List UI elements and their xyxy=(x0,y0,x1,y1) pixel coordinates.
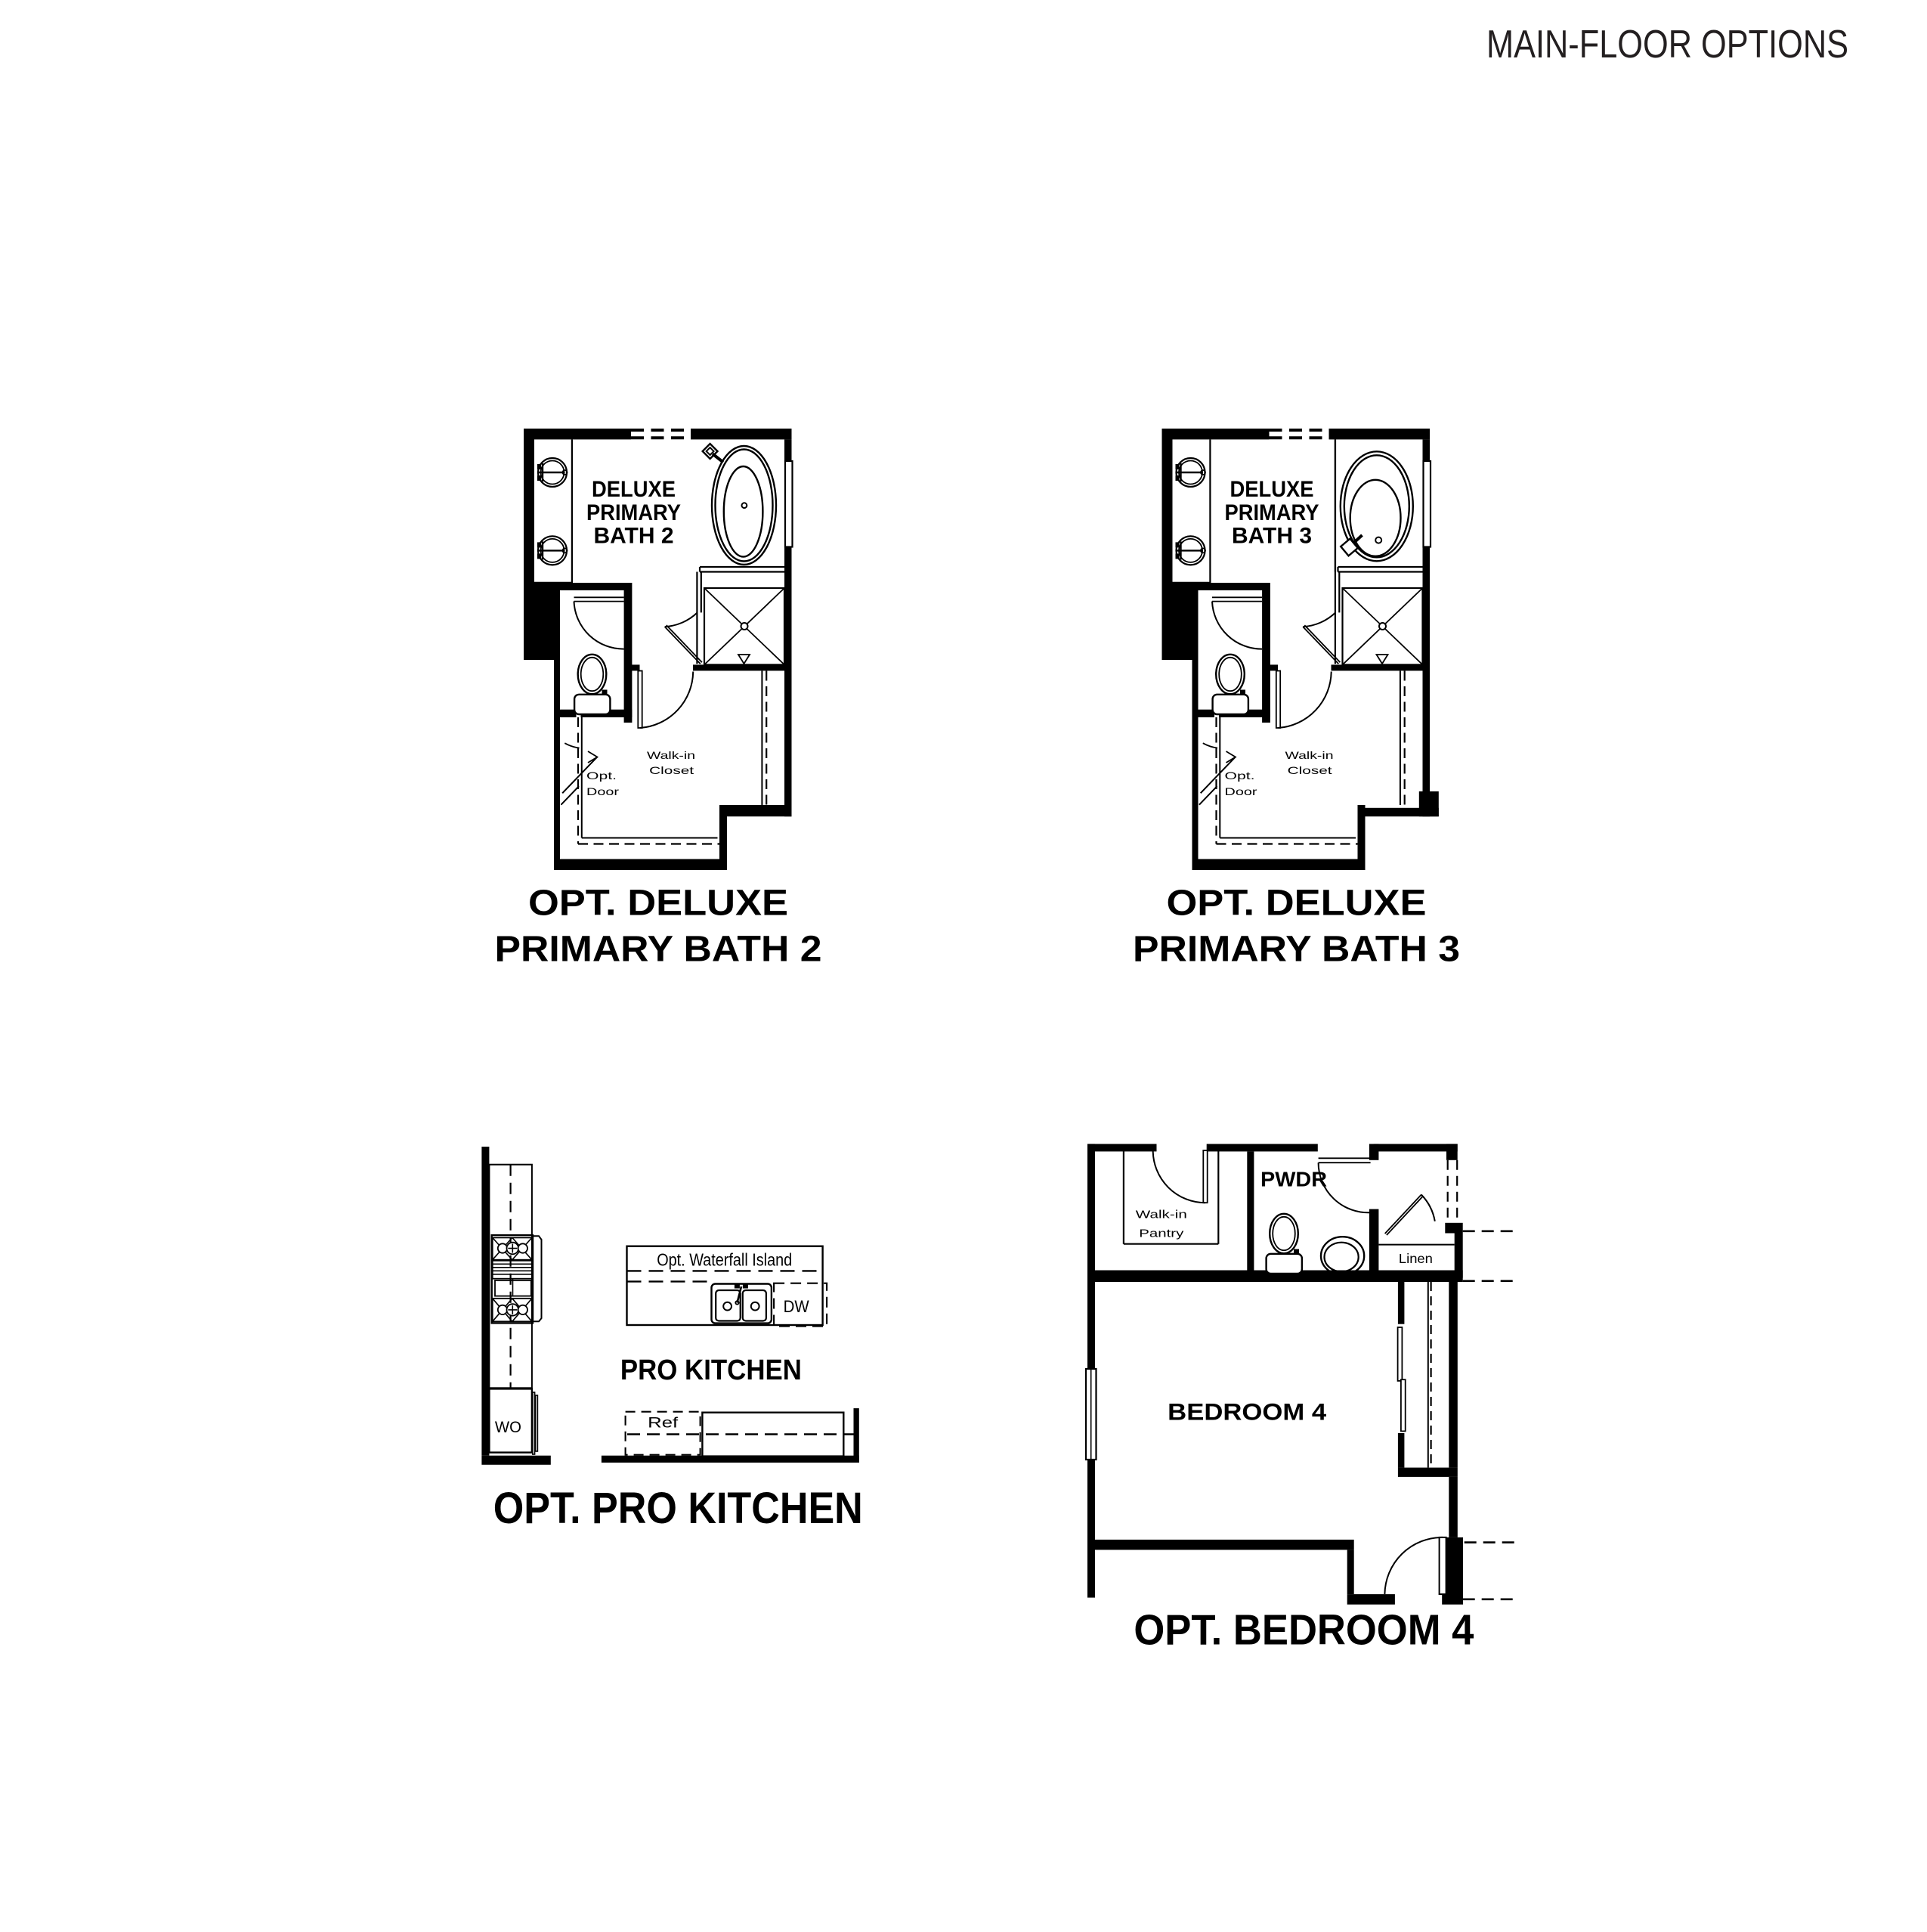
svg-text:Closet: Closet xyxy=(1288,764,1332,776)
svg-text:DELUXE: DELUXE xyxy=(1230,477,1314,502)
svg-text:PRIMARY BATH 2: PRIMARY BATH 2 xyxy=(495,929,822,969)
svg-text:OPT. DELUXE: OPT. DELUXE xyxy=(528,884,788,924)
svg-text:PWDR: PWDR xyxy=(1260,1168,1327,1191)
svg-text:Ref: Ref xyxy=(648,1414,679,1431)
svg-text:BATH 3: BATH 3 xyxy=(1232,524,1312,549)
svg-text:OPT. PRO KITCHEN: OPT. PRO KITCHEN xyxy=(493,1484,863,1533)
svg-text:BATH 2: BATH 2 xyxy=(594,524,674,549)
svg-text:MAIN-FLOOR OPTIONS: MAIN-FLOOR OPTIONS xyxy=(1486,23,1848,67)
svg-text:DW: DW xyxy=(784,1297,809,1316)
svg-text:WO: WO xyxy=(495,1419,521,1436)
svg-text:Closet: Closet xyxy=(649,764,694,776)
svg-text:Pantry: Pantry xyxy=(1139,1227,1184,1240)
svg-text:DELUXE: DELUXE xyxy=(592,477,676,502)
svg-text:PRO KITCHEN: PRO KITCHEN xyxy=(620,1355,802,1386)
svg-text:Walk-in: Walk-in xyxy=(1285,749,1334,761)
svg-text:PRIMARY: PRIMARY xyxy=(586,500,681,525)
svg-text:OPT. BEDROOM 4: OPT. BEDROOM 4 xyxy=(1134,1605,1474,1654)
svg-text:BEDROOM 4: BEDROOM 4 xyxy=(1168,1398,1327,1425)
svg-text:Walk-in: Walk-in xyxy=(647,749,695,761)
svg-text:Door: Door xyxy=(586,785,619,797)
svg-text:PRIMARY: PRIMARY xyxy=(1225,500,1319,525)
svg-text:Opt.: Opt. xyxy=(586,769,617,782)
svg-text:Linen: Linen xyxy=(1399,1251,1433,1266)
svg-text:Walk-in: Walk-in xyxy=(1136,1208,1187,1221)
svg-text:Door: Door xyxy=(1225,785,1257,797)
svg-text:PRIMARY BATH 3: PRIMARY BATH 3 xyxy=(1133,929,1460,969)
svg-text:Opt. Waterfall Island: Opt. Waterfall Island xyxy=(657,1249,792,1269)
svg-text:OPT. DELUXE: OPT. DELUXE xyxy=(1167,884,1427,924)
svg-text:Opt.: Opt. xyxy=(1225,769,1255,782)
